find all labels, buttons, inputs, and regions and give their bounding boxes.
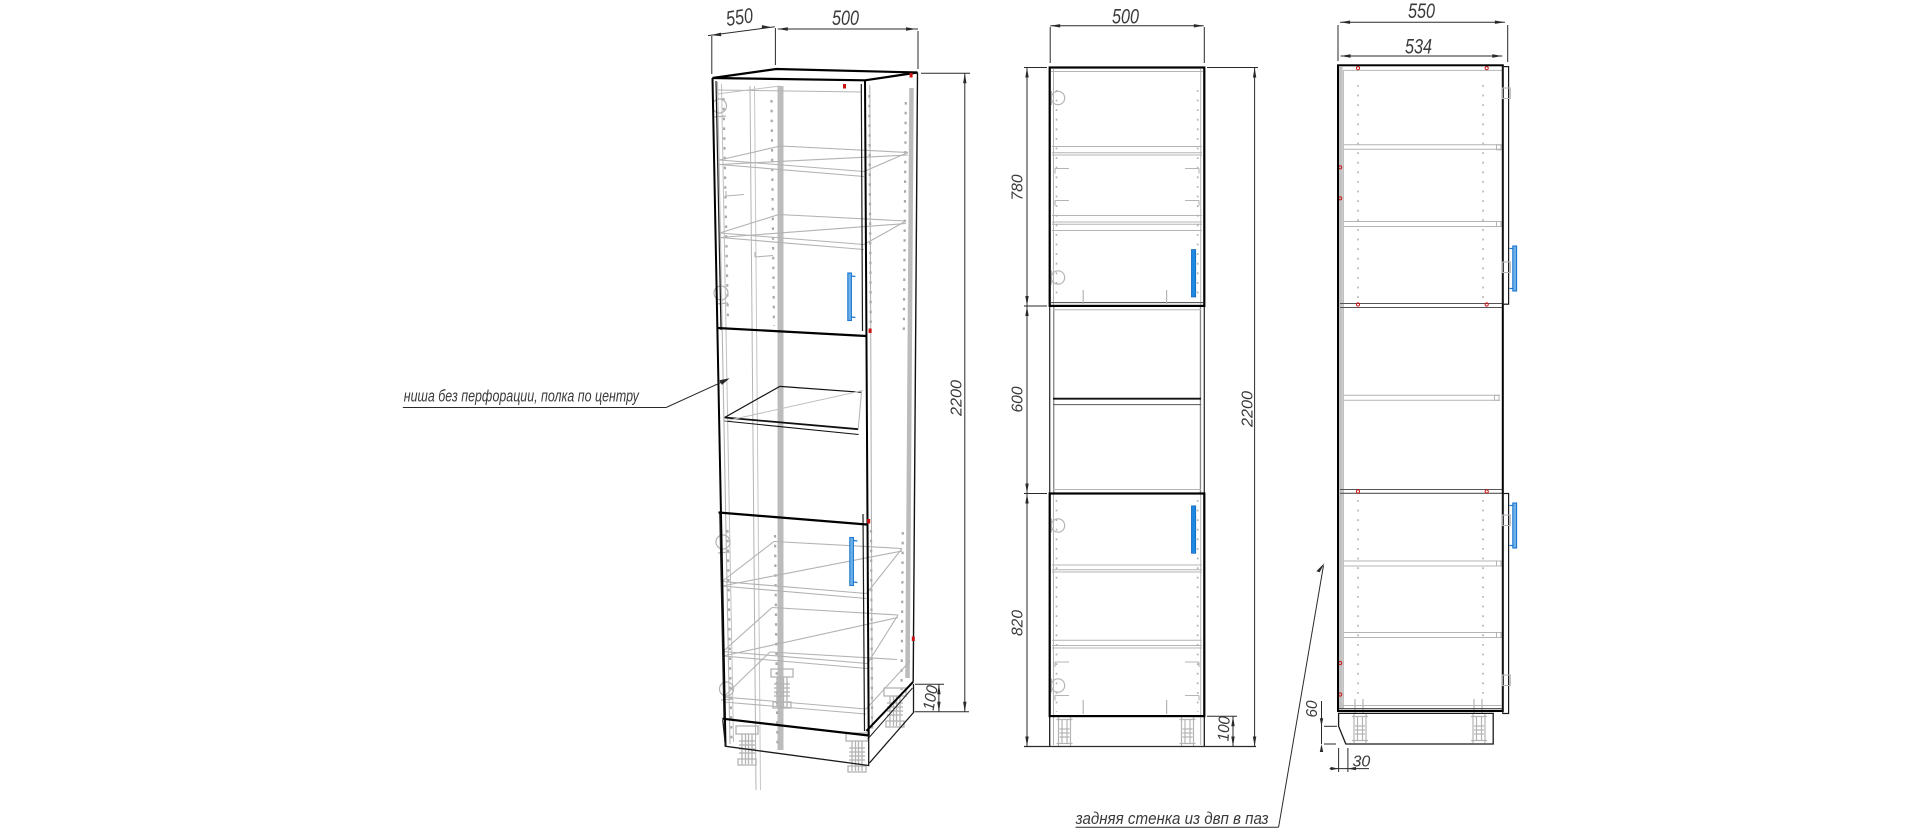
svg-text:100: 100: [1216, 716, 1234, 742]
svg-text:60: 60: [1304, 700, 1321, 717]
svg-text:600: 600: [1010, 386, 1027, 412]
svg-text:500: 500: [1112, 6, 1139, 29]
svg-text:2200: 2200: [1240, 391, 1257, 428]
svg-text:задняя стенка из двп в паз: задняя стенка из двп в паз: [1075, 809, 1269, 828]
svg-text:534: 534: [1405, 36, 1432, 59]
svg-text:780: 780: [1010, 174, 1027, 200]
svg-text:2200: 2200: [949, 380, 966, 417]
svg-text:550: 550: [724, 4, 754, 31]
svg-text:30: 30: [1353, 754, 1371, 771]
svg-text:820: 820: [1010, 610, 1027, 636]
svg-text:500: 500: [832, 7, 859, 30]
svg-text:ниша без перфорации, полка по: ниша без перфорации, полка по центру: [404, 387, 640, 406]
svg-text:550: 550: [1408, 0, 1435, 23]
